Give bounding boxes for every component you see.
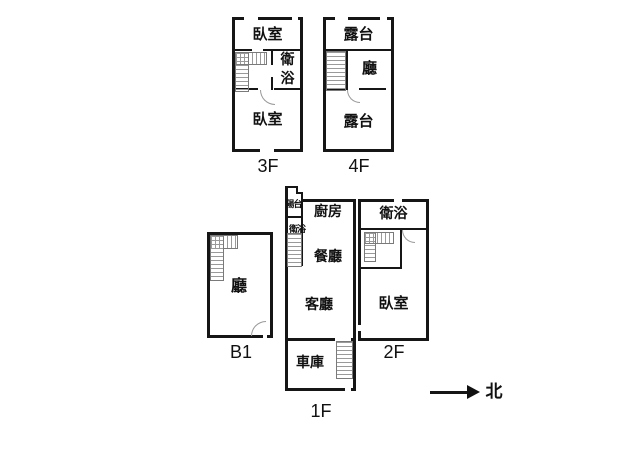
wall [285,216,302,218]
floor-label-2f: 2F [356,342,432,363]
wall [358,267,402,269]
room-label-bedroom: 臥室 [358,295,429,312]
wall [267,335,273,338]
north-arrow-shaft [430,391,467,394]
floor-label-b1: B1 [205,342,277,363]
room-label-terrace: 露台 [323,26,394,43]
wall [358,199,394,202]
door-swing-arc [347,90,360,103]
staircase-icon [287,233,302,267]
wall [271,49,273,65]
room-label-bedroom: 臥室 [232,26,303,43]
north-label: 北 [484,383,504,403]
wall [285,338,335,341]
wall [358,228,429,230]
floor-label-4f: 4F [321,156,397,177]
floorplan-sheet: 臥室 衛浴 臥室 3F 露台 廳 露台 4F 廳 B1 [0,0,640,452]
wall [402,199,429,202]
wall [358,338,429,341]
north-arrow-head-icon [467,385,480,399]
room-label-dining: 餐廳 [303,249,353,265]
staircase-icon [210,235,224,281]
staircase-icon [326,51,346,91]
wall [285,388,345,391]
door-swing-arc [251,321,266,336]
room-label-garage: 車庫 [285,355,335,371]
wall [258,17,292,20]
floorplan-4f: 露台 廳 露台 4F [321,15,397,175]
wall [323,149,394,152]
room-label-hall: 廳 [207,277,271,295]
room-label-terrace: 露台 [323,113,394,130]
wall [271,77,273,90]
door-swing-arc [260,90,275,105]
floorplan-1f: 陽台 衛浴 廚房 餐廳 客廳 車庫 1F [283,183,359,428]
room-label-living: 客廳 [285,297,353,313]
room-label-bathroom: 衛浴 [358,206,429,222]
room-label-bedroom: 臥室 [232,111,303,128]
wall [359,88,386,90]
staircase-icon [364,232,376,262]
floorplan-2f: 衛浴 臥室 2F [356,197,432,365]
wall [301,199,356,202]
room-label-bathroom: 衛浴 [279,51,296,89]
floor-label-3f: 3F [230,156,306,177]
staircase-icon [336,341,353,379]
compass: 北 [428,380,528,408]
floorplan-b1: 廳 B1 [205,230,277,365]
wall [274,149,303,152]
wall [232,49,252,51]
floorplan-3f: 臥室 衛浴 臥室 3F [230,15,306,175]
wall [348,17,380,20]
room-label-hall: 廳 [348,60,391,77]
staircase-icon [235,52,249,92]
floor-label-1f: 1F [283,401,359,422]
wall [232,149,260,152]
wall [351,388,356,391]
room-label-balcony: 陽台 [285,200,302,210]
room-label-kitchen: 廚房 [303,204,353,220]
door-swing-arc [402,230,415,243]
room-label-bathroom: 衛浴 [286,225,308,235]
